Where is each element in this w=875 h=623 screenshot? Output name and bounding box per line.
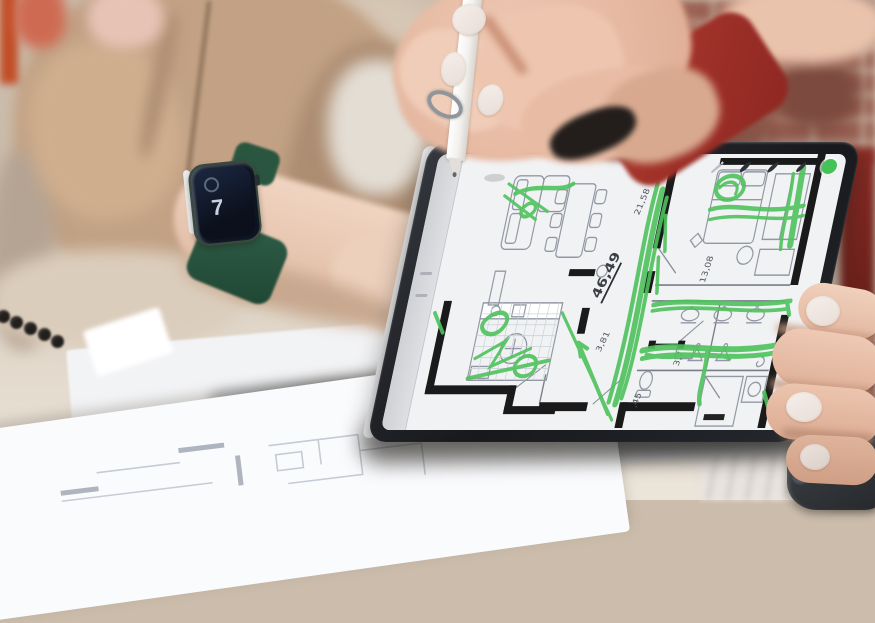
sidebar-tool-mark <box>415 294 428 297</box>
stylus-contact-shadow <box>483 174 505 182</box>
photo-scene: { "tablet_app": { "toolbar": { "icons": … <box>0 0 875 500</box>
green-annotations <box>412 168 820 420</box>
measurement-label-left: 3,81 <box>595 330 613 353</box>
smartwatch: 7 <box>187 159 263 248</box>
ink-pen-tool-icon[interactable] <box>792 160 809 174</box>
active-color-swatch[interactable] <box>820 159 838 174</box>
bead <box>38 328 51 341</box>
marker-tool-icon[interactable] <box>764 160 781 174</box>
stylus-nib <box>452 172 457 177</box>
app-toolbar <box>708 159 838 174</box>
watch-crown <box>254 174 260 185</box>
brick-dark-patch <box>775 58 860 130</box>
bead <box>24 322 37 335</box>
watch-digit: 7 <box>210 194 225 221</box>
pencil-tool-icon[interactable] <box>708 160 725 174</box>
sidebar-tool-mark <box>420 272 433 275</box>
hand-bottom-finger-4 <box>785 434 875 487</box>
watch-face: 7 <box>193 165 256 240</box>
bead <box>10 316 23 329</box>
watch-complication-ring-icon <box>203 177 219 193</box>
shower-drain-bar <box>703 414 725 420</box>
pen-tool-icon[interactable] <box>736 160 753 174</box>
measurement-label-right: 13,08 <box>698 255 716 284</box>
shirt-pink <box>88 0 163 48</box>
bead <box>51 335 64 348</box>
watch-hour-text: 7 <box>210 194 225 220</box>
